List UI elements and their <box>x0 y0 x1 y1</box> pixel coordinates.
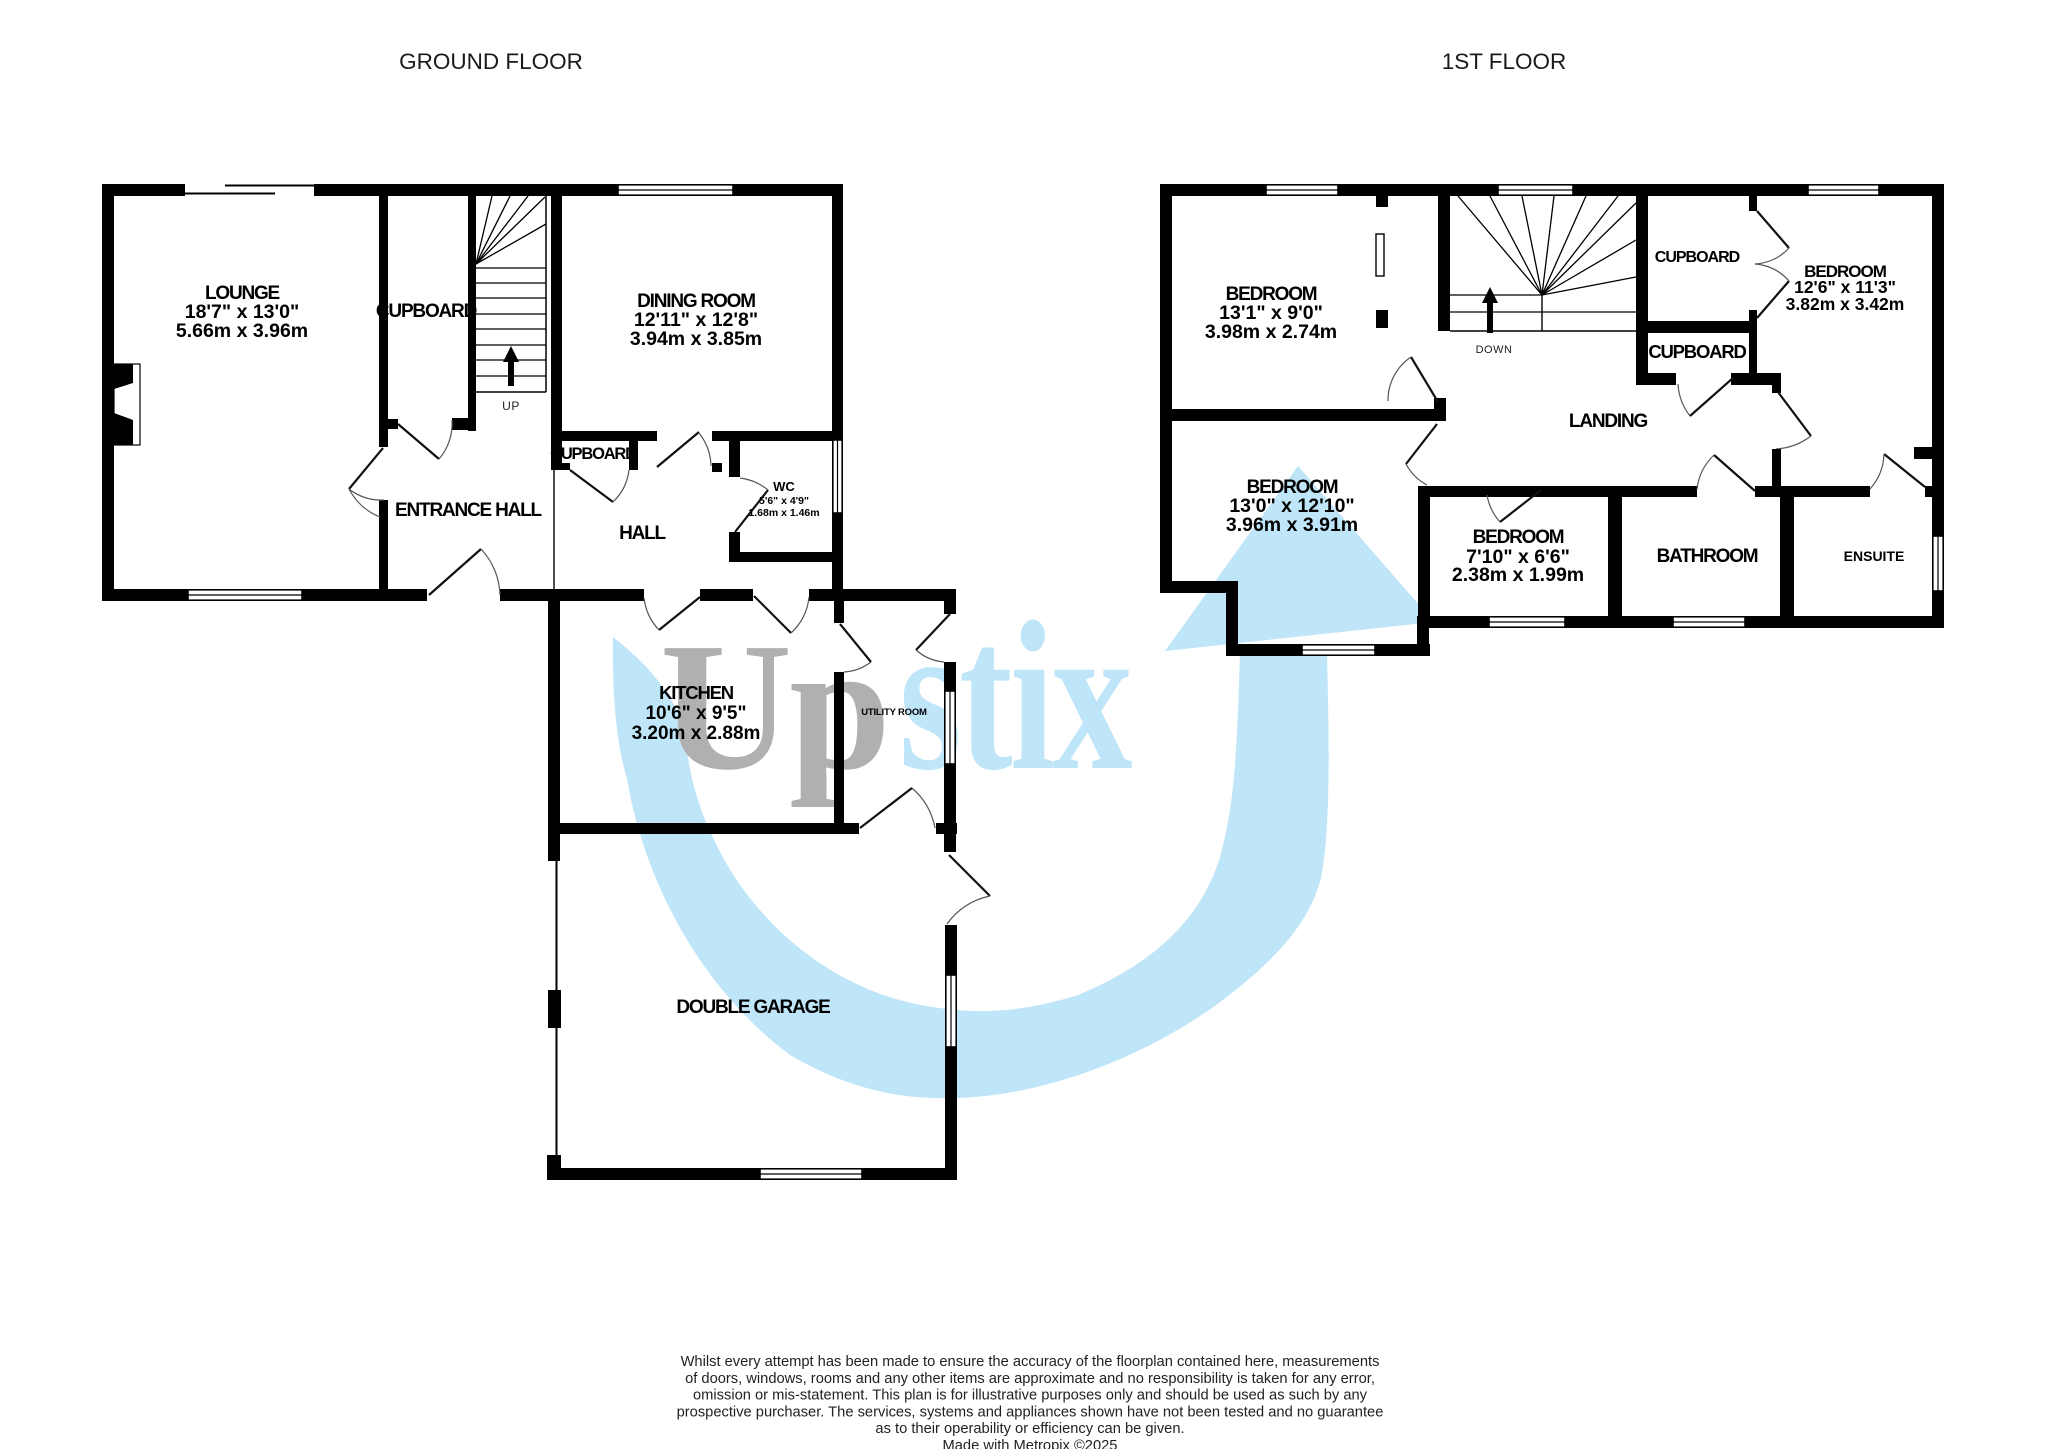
svg-text:HALL: HALL <box>619 523 666 544</box>
svg-text:2.38m x 1.99m: 2.38m x 1.99m <box>1452 564 1584 586</box>
svg-text:LANDING: LANDING <box>1569 411 1648 432</box>
svg-text:GROUND FLOOR: GROUND FLOOR <box>399 49 583 74</box>
svg-text:WC: WC <box>773 479 795 494</box>
svg-text:UP: UP <box>502 399 520 413</box>
svg-text:1.68m x 1.46m: 1.68m x 1.46m <box>748 507 819 519</box>
svg-text:5'6" x 4'9": 5'6" x 4'9" <box>759 495 809 507</box>
svg-text:Whilst every attempt has been: Whilst every attempt has been made to en… <box>681 1354 1380 1370</box>
svg-text:omission or mis-statement. Thi: omission or mis-statement. This plan is … <box>693 1388 1368 1404</box>
svg-text:ENTRANCE HALL: ENTRANCE HALL <box>395 500 542 521</box>
svg-text:CUPBOARD: CUPBOARD <box>550 445 637 463</box>
svg-text:3.96m x 3.91m: 3.96m x 3.91m <box>1226 514 1358 536</box>
svg-text:3.82m x 3.42m: 3.82m x 3.42m <box>1786 294 1905 314</box>
svg-text:of doors, windows, rooms and a: of doors, windows, rooms and any other i… <box>685 1371 1375 1387</box>
svg-text:stix: stix <box>899 577 1132 814</box>
svg-text:as to their operability or eff: as to their operability or efficiency ca… <box>875 1421 1184 1437</box>
svg-text:DOWN: DOWN <box>1476 344 1513 356</box>
svg-text:3.94m x 3.85m: 3.94m x 3.85m <box>630 328 762 350</box>
svg-text:CUPBOARD: CUPBOARD <box>1648 341 1746 362</box>
svg-text:ENSUITE: ENSUITE <box>1844 548 1905 564</box>
svg-text:prospective purchaser. The ser: prospective purchaser. The services, sys… <box>677 1404 1384 1420</box>
svg-text:BEDROOM: BEDROOM <box>1473 527 1564 548</box>
svg-text:1ST FLOOR: 1ST FLOOR <box>1442 49 1567 74</box>
svg-text:5.66m x 3.96m: 5.66m x 3.96m <box>176 320 308 342</box>
svg-text:3.98m x 2.74m: 3.98m x 2.74m <box>1205 321 1337 343</box>
svg-text:10'6" x 9'5": 10'6" x 9'5" <box>645 703 746 724</box>
svg-text:Made with Metropix ©2025: Made with Metropix ©2025 <box>943 1438 1118 1449</box>
svg-text:BATHROOM: BATHROOM <box>1657 546 1758 567</box>
svg-text:CUPBOARD: CUPBOARD <box>376 301 477 322</box>
svg-text:DOUBLE GARAGE: DOUBLE GARAGE <box>676 997 830 1018</box>
svg-text:CUPBOARD: CUPBOARD <box>1655 249 1740 266</box>
svg-text:3.20m x 2.88m: 3.20m x 2.88m <box>632 723 761 744</box>
svg-text:UTILITY ROOM: UTILITY ROOM <box>861 707 927 718</box>
svg-text:KITCHEN: KITCHEN <box>659 682 734 703</box>
